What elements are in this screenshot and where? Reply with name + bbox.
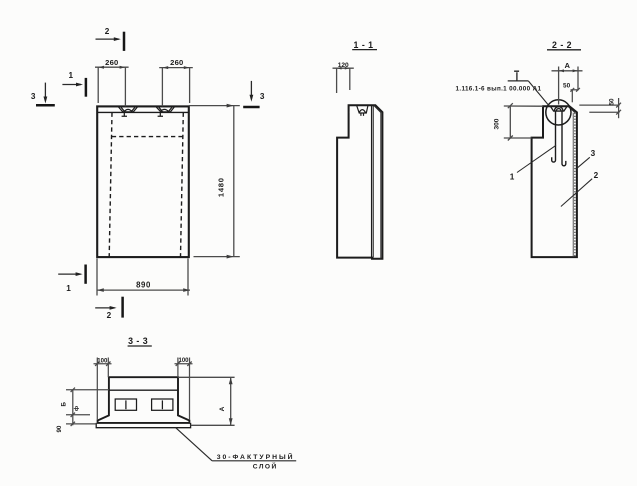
svg-text:2: 2 bbox=[594, 171, 599, 180]
svg-text:1: 1 bbox=[66, 284, 71, 293]
svg-text:30-ФАКТУРНЫЙ: 30-ФАКТУРНЫЙ bbox=[217, 452, 293, 461]
svg-text:50: 50 bbox=[563, 82, 571, 89]
svg-text:120: 120 bbox=[338, 62, 349, 69]
svg-text:90: 90 bbox=[56, 425, 63, 432]
svg-text:3: 3 bbox=[31, 92, 36, 101]
svg-text:1: 1 bbox=[510, 173, 515, 182]
svg-text:2: 2 bbox=[107, 311, 112, 320]
svg-text:3-3: 3-3 bbox=[128, 336, 151, 346]
svg-text:890: 890 bbox=[136, 281, 151, 290]
svg-text:Б: Б bbox=[61, 402, 68, 407]
svg-text:А: А bbox=[219, 406, 226, 411]
svg-text:100: 100 bbox=[178, 358, 189, 364]
svg-text:260: 260 bbox=[170, 58, 183, 67]
svg-text:ф: ф bbox=[73, 406, 80, 411]
svg-text:2: 2 bbox=[105, 27, 110, 36]
svg-text:А: А bbox=[565, 61, 571, 70]
svg-text:1-1: 1-1 bbox=[354, 40, 377, 50]
svg-text:1: 1 bbox=[69, 71, 74, 80]
svg-text:50: 50 bbox=[608, 98, 615, 106]
svg-text:2-2: 2-2 bbox=[552, 40, 575, 50]
svg-text:100: 100 bbox=[97, 358, 108, 364]
svg-text:300: 300 bbox=[494, 118, 501, 129]
svg-text:3: 3 bbox=[591, 149, 596, 158]
svg-text:3: 3 bbox=[260, 92, 265, 101]
svg-text:1.116.1-6 вып.1 00.000 А1: 1.116.1-6 вып.1 00.000 А1 bbox=[456, 86, 542, 93]
svg-text:260: 260 bbox=[105, 58, 118, 67]
svg-text:1480: 1480 bbox=[216, 177, 225, 197]
svg-text:СЛОЙ: СЛОЙ bbox=[253, 462, 277, 471]
